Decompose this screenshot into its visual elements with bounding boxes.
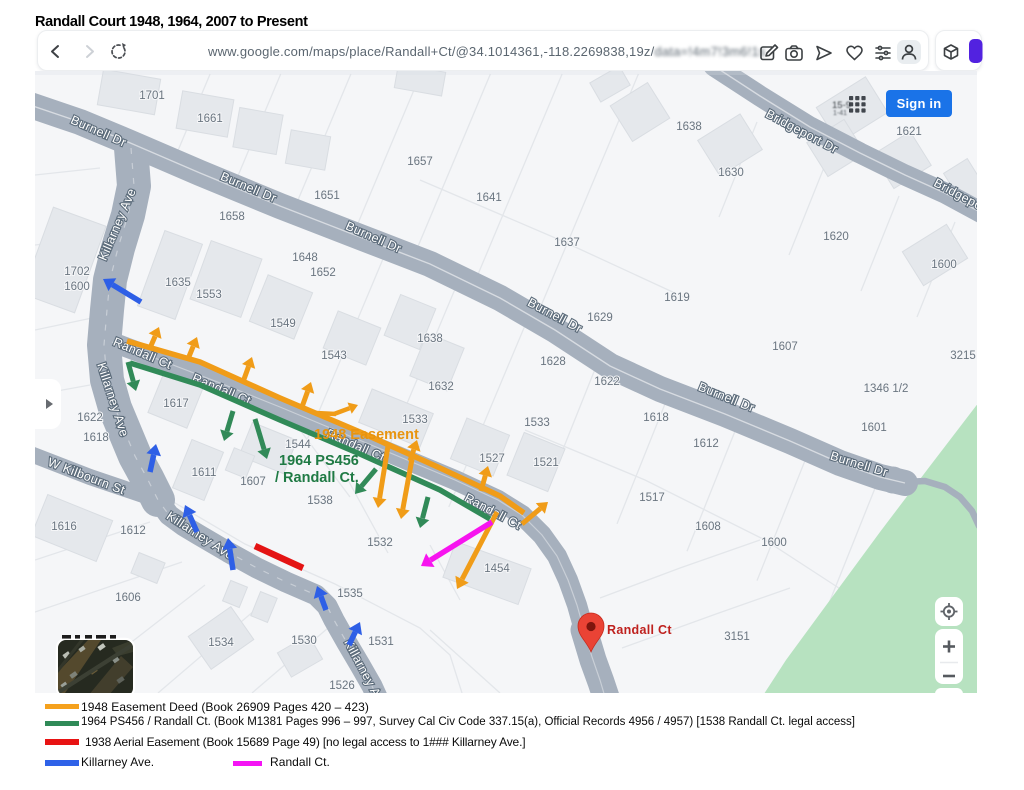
- svg-text:1638: 1638: [417, 333, 443, 345]
- svg-text:1622: 1622: [594, 376, 620, 388]
- svg-text:1607: 1607: [772, 341, 798, 353]
- svg-text:1600: 1600: [931, 259, 957, 271]
- svg-text:1612: 1612: [120, 525, 146, 537]
- svg-text:1629: 1629: [587, 312, 613, 324]
- svg-text:1521: 1521: [533, 457, 559, 469]
- svg-text:1635: 1635: [165, 277, 191, 289]
- svg-text:1532: 1532: [367, 537, 393, 549]
- svg-text:1527: 1527: [479, 453, 505, 465]
- svg-text:1617: 1617: [163, 398, 189, 410]
- svg-text:1454: 1454: [484, 563, 510, 575]
- svg-text:1648: 1648: [292, 252, 318, 264]
- svg-text:1622: 1622: [77, 412, 103, 424]
- svg-text:1638: 1638: [676, 121, 702, 133]
- svg-text:1531: 1531: [368, 636, 394, 648]
- svg-text:3215: 3215: [950, 350, 976, 362]
- svg-text:1618: 1618: [643, 412, 669, 424]
- svg-text:1661: 1661: [197, 113, 223, 125]
- svg-text:1606: 1606: [115, 592, 141, 604]
- svg-text:1608: 1608: [695, 521, 721, 533]
- svg-text:1612: 1612: [693, 438, 719, 450]
- svg-text:1600: 1600: [64, 281, 90, 293]
- svg-text:1549: 1549: [270, 318, 296, 330]
- svg-text:1530: 1530: [291, 635, 317, 647]
- svg-text:Sign in: Sign in: [897, 96, 942, 111]
- svg-text:1702: 1702: [64, 266, 90, 278]
- svg-text:1618: 1618: [83, 432, 109, 444]
- svg-text:1533: 1533: [524, 417, 550, 429]
- svg-text:1652: 1652: [310, 267, 336, 279]
- svg-text:1948 Easement: 1948 Easement: [314, 427, 419, 443]
- svg-text:1651: 1651: [314, 190, 340, 202]
- svg-text:1658: 1658: [219, 211, 245, 223]
- svg-text:1535: 1535: [337, 588, 363, 600]
- svg-text:1611: 1611: [192, 467, 217, 479]
- svg-text:1657: 1657: [407, 156, 433, 168]
- svg-text:1533: 1533: [402, 414, 428, 426]
- svg-text:1543: 1543: [321, 350, 347, 362]
- svg-text:1534: 1534: [208, 637, 234, 649]
- svg-text:1616: 1616: [51, 521, 77, 533]
- svg-text:1628: 1628: [540, 356, 566, 368]
- svg-text:1620: 1620: [823, 231, 849, 243]
- svg-text:Randall Ct: Randall Ct: [607, 623, 672, 637]
- svg-text:1619: 1619: [664, 292, 690, 304]
- svg-text:1517: 1517: [639, 492, 665, 504]
- svg-text:1526: 1526: [329, 680, 355, 692]
- svg-text:1630: 1630: [718, 167, 744, 179]
- svg-text:1538: 1538: [307, 495, 333, 507]
- svg-text:1621: 1621: [896, 126, 922, 138]
- svg-text:1641: 1641: [476, 192, 502, 204]
- svg-text:3151: 3151: [724, 631, 750, 643]
- svg-text:1701: 1701: [139, 90, 165, 102]
- svg-text:1544: 1544: [285, 439, 311, 451]
- svg-text:1553: 1553: [196, 289, 222, 301]
- svg-text:1964 PS456: 1964 PS456: [279, 453, 359, 469]
- svg-text:/ Randall Ct.: / Randall Ct.: [275, 470, 359, 486]
- svg-text:1-41: 1-41: [833, 110, 847, 117]
- svg-text:1637: 1637: [554, 237, 580, 249]
- svg-text:1600: 1600: [761, 537, 787, 549]
- svg-text:1601: 1601: [861, 422, 887, 434]
- svg-text:1607: 1607: [240, 476, 266, 488]
- svg-text:1346 1/2: 1346 1/2: [864, 383, 909, 395]
- svg-text:1632: 1632: [428, 381, 454, 393]
